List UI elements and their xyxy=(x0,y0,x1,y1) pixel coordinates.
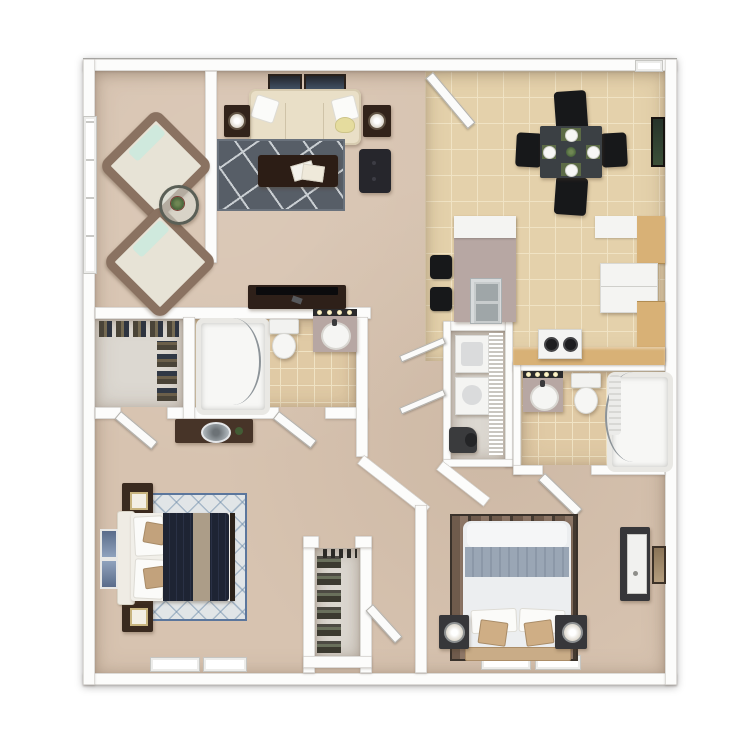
bar-stool xyxy=(430,255,452,279)
sofa-throw xyxy=(335,117,355,133)
washer xyxy=(455,335,489,373)
potted-plant xyxy=(171,197,184,210)
dryer xyxy=(455,377,489,415)
closet-hanging-items xyxy=(323,549,357,558)
nightstand xyxy=(439,615,469,649)
shower-curtain xyxy=(609,375,621,435)
accent-pillow xyxy=(477,619,508,647)
table-lamp xyxy=(562,622,583,643)
bar-stool xyxy=(430,287,452,311)
vanity-light xyxy=(317,310,322,315)
end-table xyxy=(363,105,391,137)
bed-runner xyxy=(193,513,210,601)
hall-console-table xyxy=(175,419,253,443)
decor-bowl xyxy=(201,422,231,443)
toilet xyxy=(571,373,601,388)
plate xyxy=(587,146,600,159)
dining-chair xyxy=(600,132,628,167)
kitchen-peninsula xyxy=(454,216,516,322)
chair-pillow xyxy=(132,220,170,258)
bedroom1-window-a xyxy=(150,657,200,672)
kitchen-countertop-right xyxy=(595,216,641,238)
shoe-closet-east-wall xyxy=(360,536,372,673)
toilet-bowl xyxy=(272,333,296,359)
closet-bath-divider-wall xyxy=(183,317,195,419)
sofa xyxy=(249,89,361,145)
small-plant xyxy=(235,427,243,435)
armoire-door xyxy=(627,534,647,594)
vanity-light xyxy=(535,372,540,377)
shoe-closet-north-wall-a xyxy=(303,536,319,548)
dryer-door xyxy=(462,385,482,405)
armoire xyxy=(620,527,650,601)
bath2-west-wall xyxy=(513,361,521,475)
table-lamp xyxy=(130,608,148,626)
bed-1 xyxy=(117,511,235,603)
outer-wall-top xyxy=(83,59,677,71)
bedroom2-wall-art xyxy=(652,546,666,584)
stove xyxy=(538,329,582,359)
tv-stand xyxy=(291,295,302,304)
tuft-dot xyxy=(372,177,376,181)
bedroom1-wall-art xyxy=(100,529,118,559)
vanity-light xyxy=(347,310,352,315)
dining-table xyxy=(540,126,602,178)
coffee-table xyxy=(258,155,338,187)
bedroom1-window-b xyxy=(203,657,247,672)
nightstand xyxy=(555,615,587,649)
vanity-sink xyxy=(313,316,357,352)
bath1-east-wall xyxy=(356,317,368,457)
laundry-east-wall xyxy=(505,321,513,467)
armoire-knob xyxy=(633,571,638,576)
dining-chair xyxy=(554,176,589,216)
centerpiece-plant xyxy=(566,147,576,157)
shoe-closet-north-wall-b xyxy=(355,536,372,548)
vanity-light xyxy=(526,372,531,377)
vanity-light-bar xyxy=(523,371,563,378)
shoe-closet-south-wall xyxy=(303,656,372,668)
stove-burner xyxy=(563,337,578,352)
laundry-south-wall xyxy=(443,459,513,467)
shoe-closet-west-wall xyxy=(303,536,315,673)
ottoman xyxy=(359,149,391,193)
footboard xyxy=(230,513,235,601)
table-lamp xyxy=(130,492,148,510)
table-lamp xyxy=(444,622,465,643)
dining-chair xyxy=(515,132,543,167)
vacuum xyxy=(449,427,477,453)
kitchen-double-sink xyxy=(470,278,502,324)
duvet-fold xyxy=(467,523,567,547)
stove-burner xyxy=(544,337,559,352)
plate xyxy=(543,146,556,159)
vanity-sink xyxy=(523,378,563,412)
tv-screen xyxy=(256,287,338,295)
vacuum-body xyxy=(465,433,477,447)
sink-bowl xyxy=(530,384,559,411)
floor-plan xyxy=(83,58,677,685)
kitchen-counter-south xyxy=(513,347,665,365)
toilet xyxy=(269,319,299,334)
sofa-cushion-line xyxy=(323,103,324,143)
foot-bench xyxy=(465,647,571,661)
faucet xyxy=(332,319,337,326)
vanity-light xyxy=(553,372,558,377)
bedroom1-wall-art xyxy=(100,559,118,589)
hanging-clothes xyxy=(99,321,179,337)
accent-table xyxy=(159,185,199,225)
washer-lid xyxy=(461,342,483,366)
throw-pillow xyxy=(250,94,280,124)
plate xyxy=(565,164,578,177)
sofa-cushion-line xyxy=(285,103,286,143)
end-table xyxy=(224,105,250,137)
tuft-dot xyxy=(372,161,376,165)
magazine xyxy=(301,164,325,183)
upper-cabinets xyxy=(637,216,665,264)
plate xyxy=(565,129,578,142)
toilet-bowl xyxy=(574,387,598,414)
outer-wall-bottom xyxy=(83,673,677,685)
sunroom-window xyxy=(83,116,97,274)
hanging-clothes xyxy=(157,341,177,401)
sink-basin xyxy=(474,282,500,303)
chair-pillow xyxy=(128,124,166,162)
tv-console xyxy=(248,285,346,309)
vanity-light-bar xyxy=(313,309,357,316)
vanity-light xyxy=(337,310,342,315)
wire-shelving xyxy=(489,333,503,455)
accent-pillow xyxy=(523,619,554,647)
bath2-south-wall-a xyxy=(513,465,543,475)
peninsula-countertop xyxy=(454,216,516,238)
dining-wall-art xyxy=(651,117,665,167)
sink-bowl xyxy=(321,322,351,350)
vanity-light xyxy=(327,310,332,315)
sink-basin xyxy=(474,302,500,323)
faucet xyxy=(540,380,545,387)
dining-window xyxy=(635,60,663,72)
table-lamp xyxy=(368,112,386,130)
shoe-rack xyxy=(317,553,341,653)
fridge-door-line xyxy=(601,286,657,287)
bed-band xyxy=(465,547,569,577)
bedroom2-west-wall xyxy=(415,505,427,673)
table-lamp xyxy=(228,112,246,130)
vanity-light xyxy=(544,372,549,377)
